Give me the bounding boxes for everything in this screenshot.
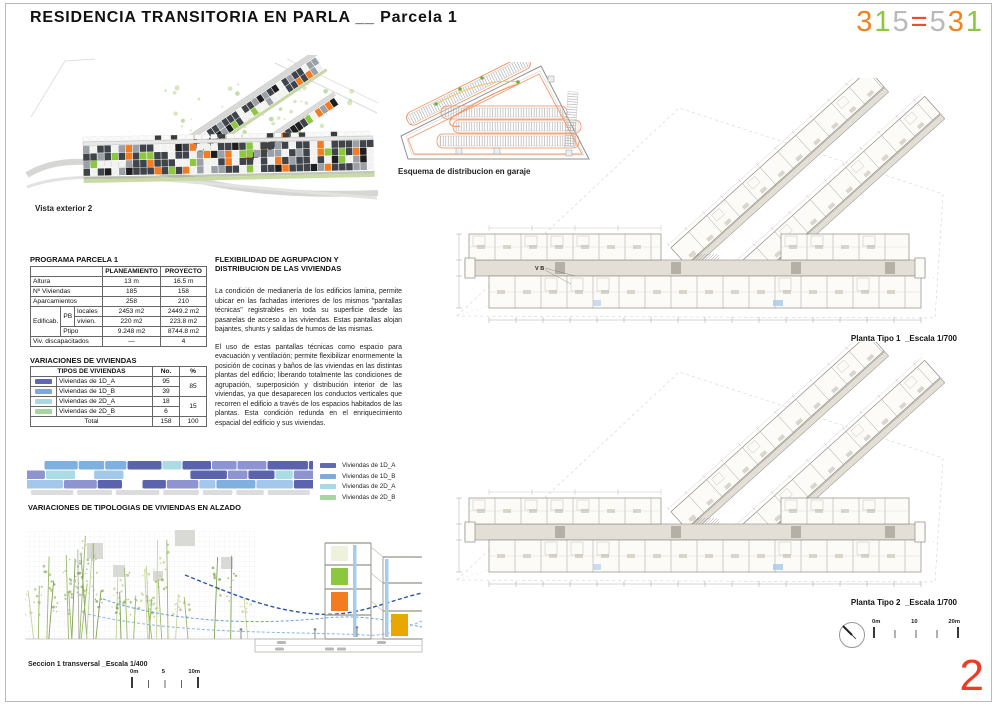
no-1da: 95 [153,377,180,387]
plan2-scale: _Escala 1/700 [905,598,957,607]
col-tipos: TIPOS DE VIVIENDAS [31,367,153,377]
label-1db: Viviendas de 1D_B [57,387,153,397]
swatch-1da [35,379,52,384]
section-scalebar-labels: 0m 5 10m [130,669,200,675]
aparc-proy: 210 [160,297,206,307]
aparc-label: Aparcamientos [31,297,103,307]
logo-char: 3 [948,6,966,38]
section-scalebar-ticks [130,676,200,692]
row-aparcamientos: Aparcamientos 258 210 [31,297,207,307]
swatch-2db [35,409,52,414]
plan2-name: Planta Tipo 2 [851,598,901,607]
pb-label: PB [61,307,75,327]
plan2-label: Planta Tipo 2 _Escala 1/700 [777,598,957,607]
col-no: No. [153,367,180,377]
nviv-proy: 158 [160,287,206,297]
swatch-1db [35,389,52,394]
logo-char: 1 [874,6,892,38]
locales-proy: 2449.2 m2 [160,307,206,317]
page-number: 2 [960,654,984,698]
discap-plan: — [103,337,161,347]
total-no: 158 [153,417,180,427]
discap-label: Viv. discapacitados [31,337,103,347]
plan-scalebar-mid: 10 [911,619,917,625]
legend-item-1da: Viviendas de 1D_A [320,462,395,469]
col-pct: % [180,367,207,377]
alzado-caption: VARIACIONES DE TIPOLOGIAS DE VIVIENDAS E… [28,503,241,512]
flexibilidad-para1: La condición de medianería de los edific… [215,287,402,335]
altura-proy: 16.5 m [160,277,206,287]
section-scalebar-mid: 5 [162,669,165,675]
legend-label-1db: Viviendas de 1D_B [342,473,395,480]
label-2db: Viviendas de 2D_B [57,407,153,417]
viviendas-total-row: Total 158 100 [31,417,207,427]
section-caption: Seccion 1 transversal _Escala 1/400 [28,661,147,668]
presentation-board: RESIDENCIA TRANSITORIA EN PARLA __ Parce… [0,0,1000,707]
exterior-caption: Vista exterior 2 [35,204,92,213]
north-compass-icon [836,619,868,651]
plan-scalebar-end: 20m [948,619,960,625]
no-1db: 39 [153,387,180,397]
legend-item-2db: Viviendas de 2D_B [320,494,395,501]
typology-strips [27,461,313,495]
no-2db: 6 [153,407,180,417]
total-pct: 100 [180,417,207,427]
legend-swatch-1da [320,463,336,468]
logo-char: 3 [856,6,874,38]
swatch-2da [35,399,52,404]
viviendas-table: TIPOS DE VIVIENDAS No. % Viviendas de 1D… [30,366,207,427]
discap-proy: 4 [160,337,206,347]
floor-plan-tipo-2 [443,342,960,594]
plan-scalebar-0: 0m [872,619,880,625]
plan-scalebar-labels: 0m 10 20m [872,619,960,625]
typology-legend: Viviendas de 1D_A Viviendas de 1D_B Vivi… [320,462,395,504]
legend-swatch-2da [320,484,336,489]
studio-logo: 315=531 [856,6,984,39]
logo-char: = [911,6,930,38]
svg-text:V B: V B [535,266,544,272]
col-proyecto: PROYECTO [160,267,206,277]
legend-item-2da: Viviendas de 2D_A [320,483,395,490]
programa-header-row: PLANEAMIENTO PROYECTO [31,267,207,277]
nviv-label: Nº Viviendas [31,287,103,297]
logo-char: 5 [930,6,948,38]
row-edificab-locales: Edificab. PB locales 2453 m2 2449.2 m2 [31,307,207,317]
locales-label: locales [75,307,103,317]
flexibilidad-block: FLEXIBILIDAD DE AGRUPACION Y DISTRIBUCIO… [215,255,402,428]
no-2da: 18 [153,397,180,407]
ptipo-plan: 9.248 m2 [103,327,161,337]
viviendas-title: VARIACIONES DE VIVIENDAS [30,356,137,365]
legend-label-2db: Viviendas de 2D_B [342,494,395,501]
section-scalebar-0: 0m [130,669,138,675]
pct-1d: 85 [180,377,207,397]
viviendas-row-1da: Viviendas de 1D_A 95 85 [31,377,207,387]
section-scalebar: 0m 5 10m [130,669,200,695]
programa-table: PLANEAMIENTO PROYECTO Altura 13 m 16.5 m… [30,266,207,347]
locales-plan: 2453 m2 [103,307,161,317]
nviv-plan: 185 [103,287,161,297]
plan-scalebar-ticks [872,626,960,640]
label-1da: Viviendas de 1D_A [57,377,153,387]
legend-label-1da: Viviendas de 1D_A [342,462,395,469]
logo-char: 5 [893,6,911,38]
row-discapacitados: Viv. discapacitados — 4 [31,337,207,347]
programa-title: PROGRAMA PARCELA 1 [30,255,118,264]
section-scalebar-end: 10m [188,669,200,675]
aparc-plan: 258 [103,297,161,307]
col-planeamiento: PLANEAMIENTO [103,267,161,277]
pct-2d: 15 [180,397,207,417]
flexibilidad-para2: El uso de estas pantallas técnicas como … [215,343,402,429]
exterior-render [25,55,380,200]
legend-item-1db: Viviendas de 1D_B [320,473,395,480]
plan-scalebar: 0m 10 20m [872,619,960,641]
vivien-proy: 223.8 m2 [160,317,206,327]
legend-swatch-1db [320,474,336,479]
vivien-plan: 220 m2 [103,317,161,327]
label-2da: Viviendas de 2D_A [57,397,153,407]
flexibilidad-heading: FLEXIBILIDAD DE AGRUPACION Y DISTRIBUCIO… [215,255,385,273]
vivien-label: vivien. [75,317,103,327]
logo-char: 1 [966,6,984,38]
total-label: Total [31,417,153,427]
edificab-label: Edificab. [31,307,61,337]
floor-plan-tipo-1: V B [443,78,960,330]
legend-label-2da: Viviendas de 2D_A [342,483,395,490]
ptipo-label: Ptipo [61,327,103,337]
page-title: RESIDENCIA TRANSITORIA EN PARLA __ Parce… [30,9,458,27]
altura-label: Altura [31,277,103,287]
row-nviviendas: Nº Viviendas 185 158 [31,287,207,297]
viviendas-header-row: TIPOS DE VIVIENDAS No. % [31,367,207,377]
ptipo-proy: 8744.8 m2 [160,327,206,337]
legend-swatch-2db [320,495,336,500]
viviendas-row-2da: Viviendas de 2D_A 18 15 [31,397,207,407]
section-drawing [25,527,423,653]
row-altura: Altura 13 m 16.5 m [31,277,207,287]
altura-plan: 13 m [103,277,161,287]
